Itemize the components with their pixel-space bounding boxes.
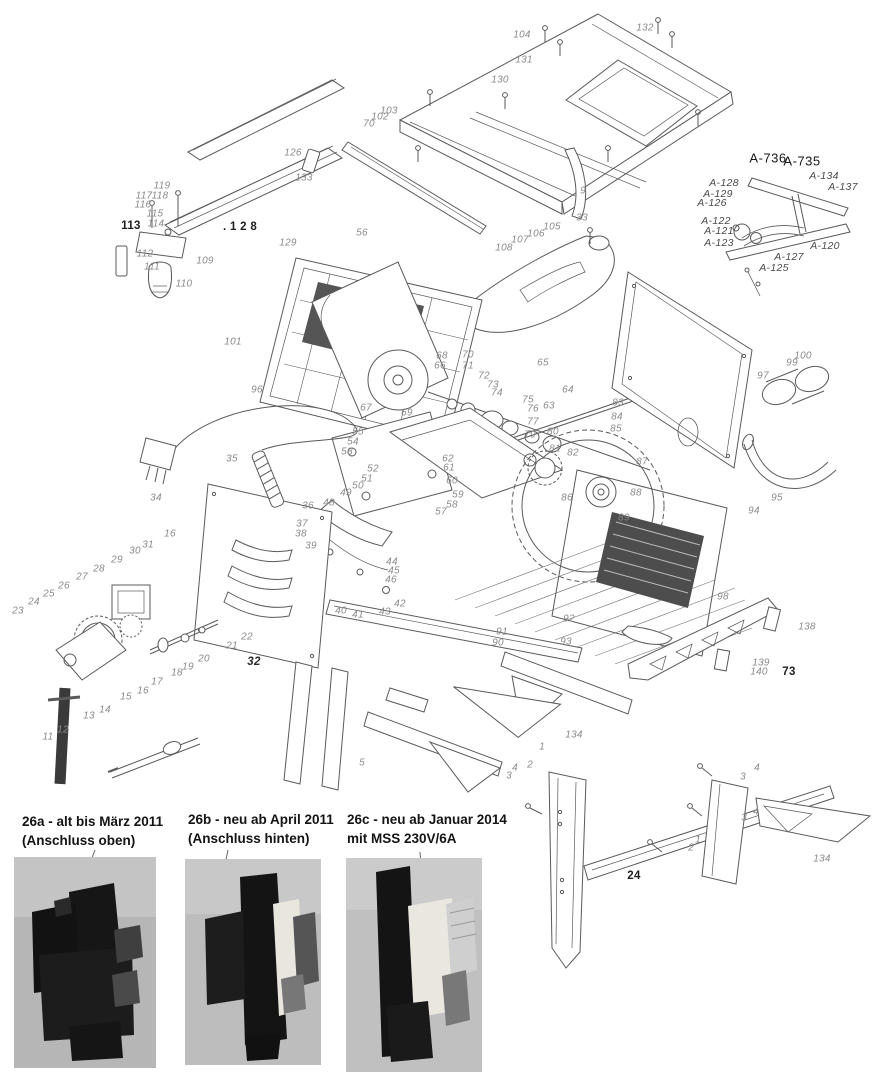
caption-line: 26b - neu ab April 2011 bbox=[188, 810, 334, 829]
switch-photo-26a bbox=[14, 857, 156, 1068]
caption-line: mit MSS 230V/6A bbox=[347, 829, 507, 848]
switch-photo-26c bbox=[346, 858, 482, 1072]
caption-line: (Anschluss oben) bbox=[22, 831, 163, 850]
switch-photo-26b bbox=[185, 859, 321, 1065]
photo-caption-26b: 26b - neu ab April 2011 (Anschluss hinte… bbox=[188, 810, 334, 848]
caption-line: 26a - alt bis März 2011 bbox=[22, 812, 163, 831]
caption-line: (Anschluss hinten) bbox=[188, 829, 334, 848]
photo-caption-26c: 26c - neu ab Januar 2014 mit MSS 230V/6A bbox=[347, 810, 507, 848]
caption-line: 26c - neu ab Januar 2014 bbox=[347, 810, 507, 829]
exploded-diagram-page: 1041311301329331031027012613311911711811… bbox=[0, 0, 895, 1080]
photo-caption-26a: 26a - alt bis März 2011 (Anschluss oben) bbox=[22, 812, 163, 850]
